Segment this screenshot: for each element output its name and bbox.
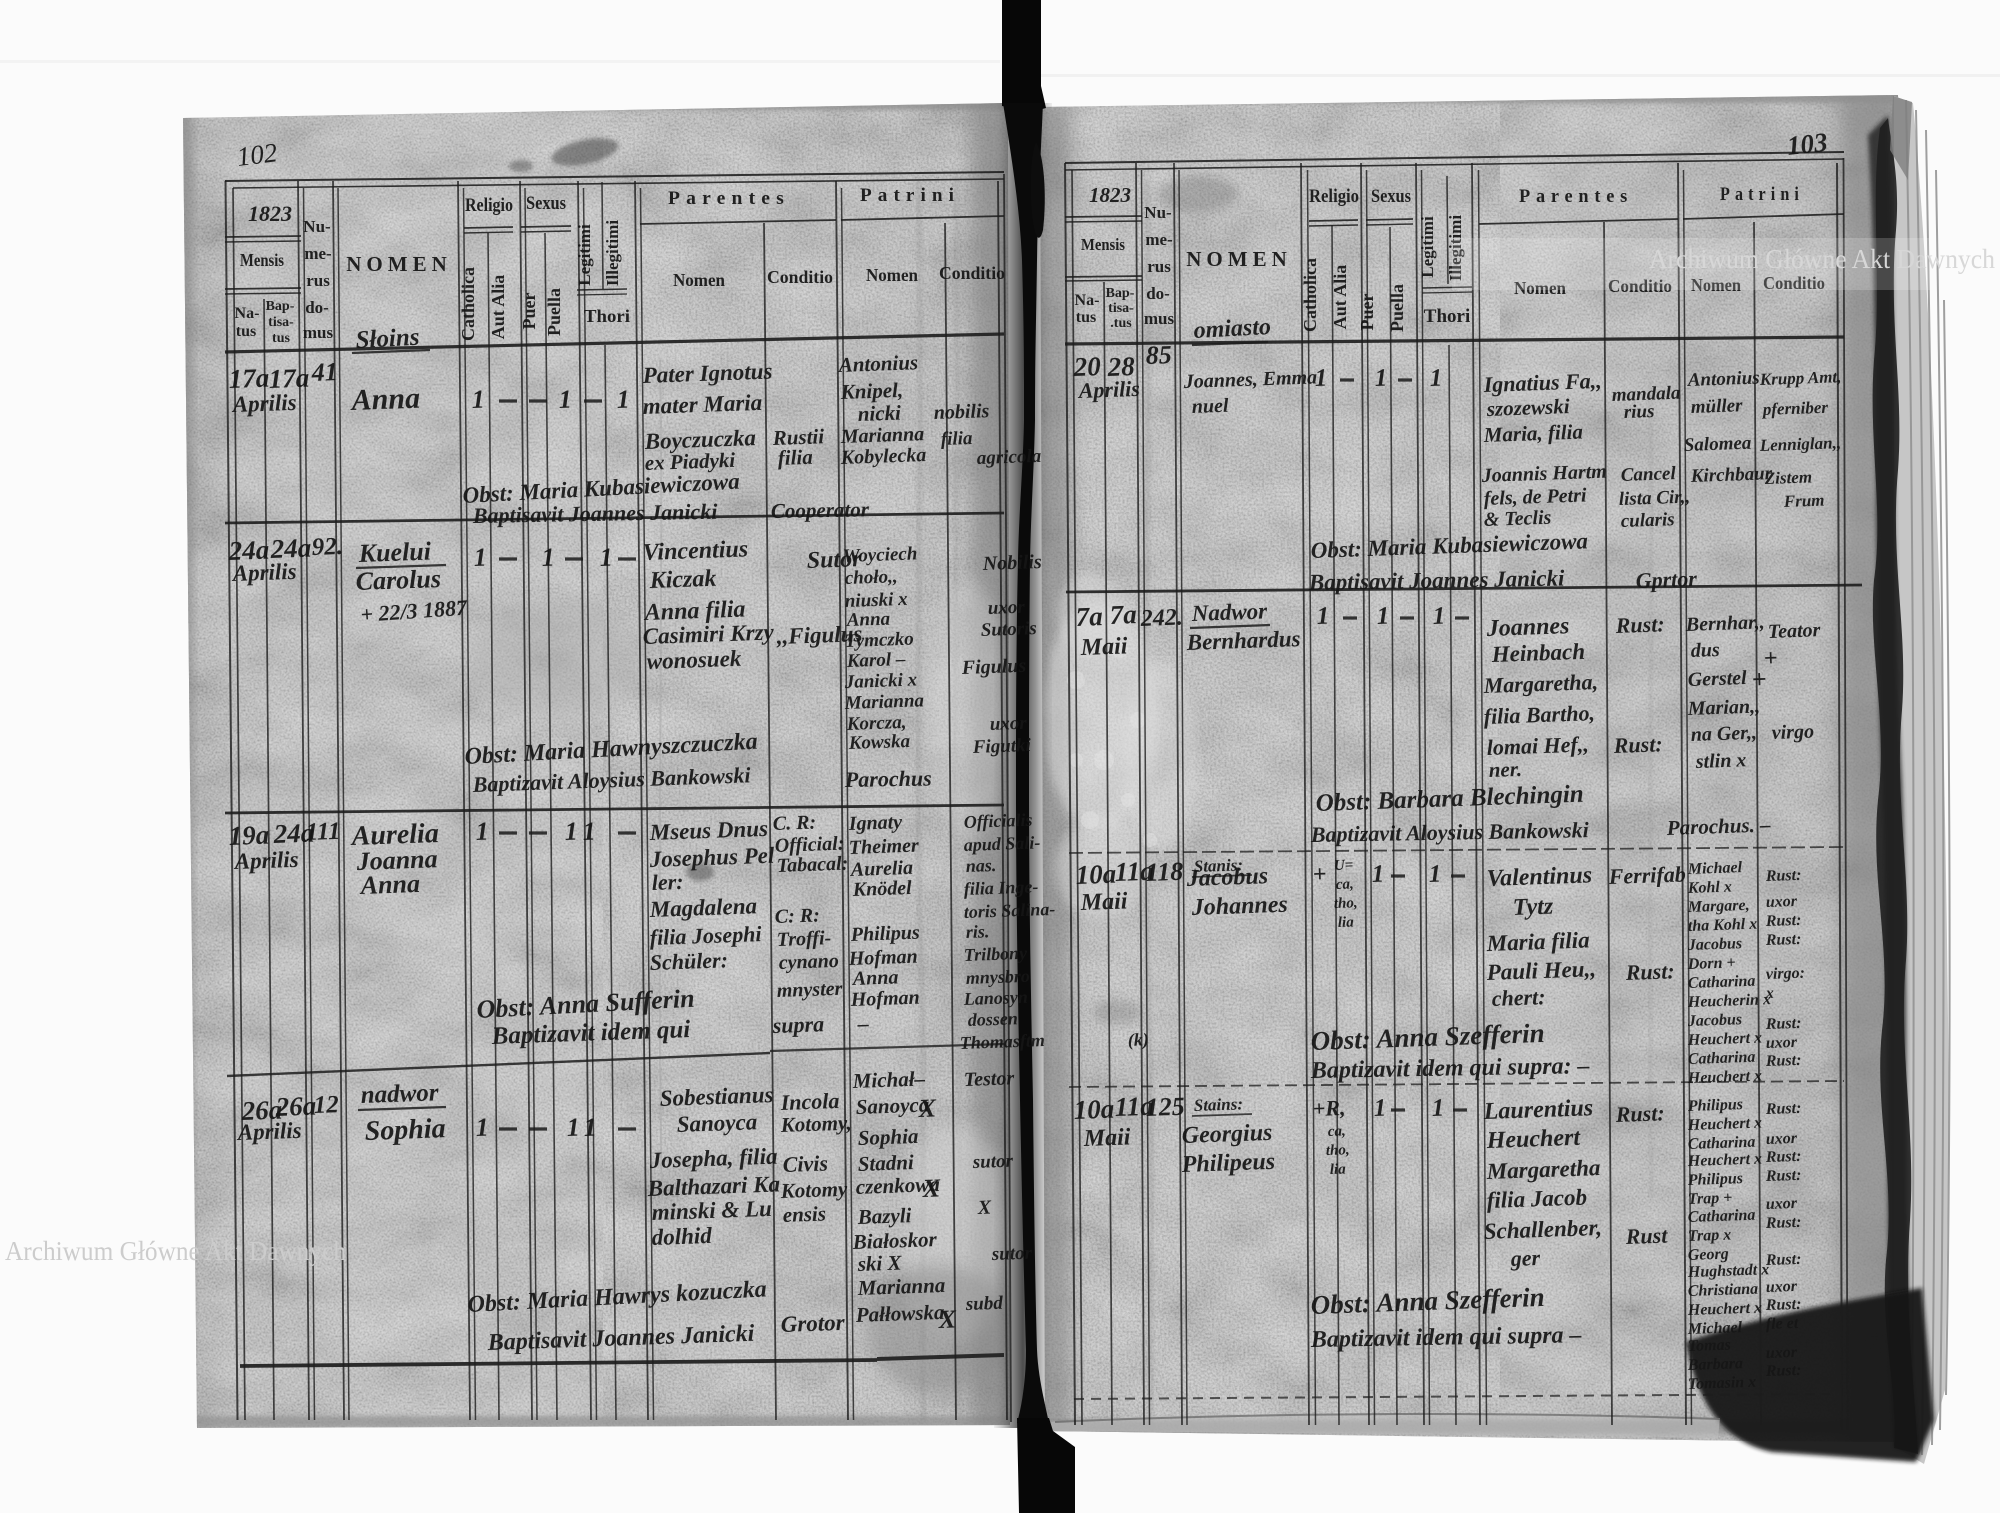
svg-text:Kotomy: Kotomy (779, 1177, 848, 1203)
svg-text:Bap-: Bap- (1106, 286, 1135, 301)
svg-text:Marianna: Marianna (843, 690, 924, 714)
svg-text:Heinbach: Heinbach (1490, 639, 1585, 667)
svg-text:Puer: Puer (1357, 293, 1377, 330)
svg-text:Schüler:: Schüler: (649, 947, 728, 975)
svg-text:Illegitimi: Illegitimi (603, 220, 622, 286)
svg-text:filia: filia (940, 428, 973, 450)
svg-text:Civis: Civis (782, 1150, 828, 1177)
svg-text:7a: 7a (1109, 599, 1137, 630)
svg-text:tho,: tho, (1334, 895, 1358, 912)
svg-text:Rust:: Rust: (1765, 931, 1802, 949)
svg-text:Salomea: Salomea (1683, 433, 1752, 456)
svg-text:Lanosyn: Lanosyn (962, 987, 1028, 1009)
svg-text:Philipeus: Philipeus (1180, 1149, 1275, 1178)
svg-text:1: 1 (558, 385, 572, 414)
svg-text:Nadwor: Nadwor (1190, 598, 1268, 626)
svg-text:omiasto: omiasto (1193, 314, 1272, 344)
svg-text:Margaretha: Margaretha (1485, 1155, 1601, 1184)
svg-text:Kuelui: Kuelui (357, 536, 432, 568)
svg-text:chert:: chert: (1491, 984, 1546, 1011)
svg-text:Puella: Puella (544, 288, 564, 336)
svg-text:Catholica: Catholica (1300, 258, 1320, 332)
svg-text:filia Bartho,: filia Bartho, (1483, 700, 1595, 729)
svg-text:Patrini: Patrini (1720, 184, 1804, 205)
svg-text:Heuchert x: Heuchert x (1687, 1029, 1763, 1049)
svg-text:Maria filia: Maria filia (1485, 927, 1590, 956)
svg-text:111: 111 (305, 818, 341, 846)
svg-text:Mensis: Mensis (240, 250, 284, 270)
svg-text:12: 12 (313, 1091, 339, 1119)
svg-text:1: 1 (475, 1113, 489, 1142)
svg-text:24a: 24a (269, 533, 312, 564)
svg-text:Rust:: Rust: (1765, 1052, 1802, 1070)
svg-text:X: X (937, 1304, 957, 1334)
svg-text:Georg: Georg (1688, 1246, 1729, 1264)
svg-text:1: 1 (1432, 603, 1445, 630)
svg-text:Jacobus: Jacobus (1687, 1011, 1743, 1030)
svg-text:Dorn +: Dorn + (1687, 954, 1736, 973)
svg-text:10a: 10a (1075, 859, 1117, 890)
svg-text:tho,: tho, (1326, 1142, 1350, 1159)
svg-text:na Ger,,: na Ger,, (1690, 722, 1757, 746)
svg-text:virgo:: virgo: (1766, 965, 1806, 983)
svg-text:Frum: Frum (1782, 491, 1824, 511)
svg-text:10a: 10a (1073, 1094, 1115, 1125)
svg-text:apud Sali-: apud Sali- (963, 832, 1040, 855)
svg-text:28: 28 (1106, 351, 1136, 382)
svg-text:Ignaty: Ignaty (847, 811, 902, 835)
svg-text:Thori: Thori (1424, 306, 1470, 327)
svg-text:Catharina: Catharina (1688, 973, 1756, 992)
svg-text:ris.: ris. (965, 921, 989, 942)
svg-text:mus: mus (1144, 309, 1175, 328)
svg-text:Catholica: Catholica (458, 267, 478, 341)
svg-text:me-: me- (304, 244, 332, 263)
svg-text:17a: 17a (268, 363, 310, 394)
svg-text:Heuchert x: Heuchert x (1687, 1067, 1763, 1087)
svg-text:Figutki: Figutki (971, 735, 1031, 758)
svg-text:tus: tus (236, 323, 256, 340)
svg-text:1: 1 (564, 817, 578, 846)
svg-text:dus: dus (1690, 639, 1720, 662)
svg-text:filia Josephi: filia Josephi (649, 921, 763, 950)
svg-text:242.: 242. (1139, 605, 1183, 632)
svg-text:Baptizavit Aloysius Bankowski: Baptizavit Aloysius Bankowski (1310, 817, 1590, 847)
svg-text:Carolus: Carolus (355, 564, 441, 596)
svg-text:X: X (976, 1197, 992, 1220)
svg-text:fels, de Petri: fels, de Petri (1483, 484, 1587, 510)
svg-text:1823: 1823 (1089, 183, 1131, 207)
svg-text:1: 1 (473, 543, 487, 572)
svg-text:Maii: Maii (1079, 633, 1128, 661)
svg-text:Figulus: Figulus (960, 655, 1026, 679)
svg-text:Barbara: Barbara (1687, 1355, 1744, 1374)
svg-text:choło,,: choło,, (844, 566, 897, 589)
svg-text:Ferrifab: Ferrifab (1607, 861, 1686, 889)
svg-text:minski & Lu: minski & Lu (651, 1196, 772, 1225)
svg-text:Josepha, filia: Josepha, filia (648, 1144, 778, 1173)
svg-text:Theimer: Theimer (848, 835, 919, 859)
svg-text:mater Maria: mater Maria (642, 390, 762, 419)
svg-text:1: 1 (1428, 861, 1441, 888)
svg-text:ensis: ensis (782, 1202, 826, 1227)
svg-text:Nobilis: Nobilis (981, 551, 1042, 575)
svg-text:Bazyli: Bazyli (856, 1203, 912, 1229)
svg-text:Kirchbaur: Kirchbaur (1689, 463, 1773, 487)
svg-text:1: 1 (1429, 365, 1442, 392)
svg-text:Sanoyca: Sanoyca (676, 1109, 757, 1137)
svg-text:Hughstadt x: Hughstadt x (1687, 1261, 1770, 1281)
svg-text:Patrini: Patrini (860, 185, 960, 206)
svg-text:Joannes: Joannes (1485, 613, 1570, 642)
svg-text:1: 1 (541, 543, 555, 572)
svg-text:Gerstel: Gerstel (1687, 667, 1747, 691)
svg-text:1: 1 (1314, 365, 1327, 392)
svg-text:Parentes: Parentes (1519, 186, 1633, 207)
svg-text:Aprilis: Aprilis (230, 390, 297, 417)
svg-text:Krupp Amt,: Krupp Amt, (1758, 367, 1841, 389)
svg-text:dolhid: dolhid (651, 1223, 712, 1250)
svg-text:17a: 17a (228, 363, 270, 394)
svg-text:Parochus. –: Parochus. – (1665, 812, 1771, 840)
svg-text:.tus: .tus (1110, 316, 1132, 331)
svg-text:Conditio: Conditio (939, 263, 1005, 283)
svg-text:26a: 26a (274, 1091, 317, 1122)
svg-text:U=: U= (1334, 857, 1354, 874)
svg-text:Rust:: Rust: (1765, 1362, 1802, 1380)
svg-text:mnyster: mnyster (776, 978, 843, 1002)
svg-text:Antonius: Antonius (1686, 368, 1760, 392)
svg-text:Officialis: Officialis (963, 810, 1032, 832)
svg-text:1: 1 (616, 385, 630, 414)
svg-text:Woyciech: Woyciech (842, 543, 917, 567)
svg-text:Georgius: Georgius (1181, 1120, 1273, 1149)
svg-text:& Teclis: & Teclis (1483, 507, 1552, 531)
svg-text:1: 1 (582, 817, 596, 846)
svg-text:Aut Alia: Aut Alia (488, 275, 508, 340)
svg-text:Rust:: Rust: (1765, 1148, 1802, 1166)
svg-text:Stadni: Stadni (857, 1150, 914, 1176)
svg-text:Joannis Hartm: Joannis Hartm (1480, 461, 1607, 487)
svg-text:Bap-: Bap- (266, 299, 295, 314)
svg-text:uxor: uxor (987, 597, 1025, 619)
svg-text:Nomen: Nomen (866, 265, 918, 285)
svg-text:Rust:: Rust: (1765, 1214, 1802, 1232)
svg-text:uxor: uxor (1766, 1278, 1798, 1296)
svg-text:1: 1 (1316, 603, 1329, 630)
svg-text:müller: müller (1690, 395, 1743, 418)
svg-text:1: 1 (1371, 861, 1384, 888)
svg-text:Jacobus: Jacobus (1185, 863, 1268, 892)
svg-text:X: X (921, 1173, 941, 1203)
svg-text:Archiwum Główne Akt Dawnych: Archiwum Główne Akt Dawnych (1649, 244, 1995, 274)
svg-text:Trilbony: Trilbony (963, 943, 1028, 965)
svg-text:uxor: uxor (1766, 893, 1798, 911)
svg-text:92.: 92. (311, 533, 343, 561)
svg-text:Nomen: Nomen (673, 270, 725, 290)
svg-text:Magdalena: Magdalena (648, 893, 757, 922)
svg-text:subd: subd (964, 1293, 1003, 1315)
svg-text:Ignatius Fa,,: Ignatius Fa,, (1482, 368, 1602, 397)
svg-text:Antonius: Antonius (836, 350, 918, 377)
svg-text:ner.: ner. (1488, 757, 1522, 782)
svg-text:Rust:: Rust: (1765, 1251, 1802, 1269)
svg-text:Thori: Thori (584, 306, 630, 326)
svg-text:filia: filia (777, 445, 813, 470)
svg-text:Aut Alia: Aut Alia (1330, 265, 1350, 330)
svg-text:x: x (1765, 985, 1775, 1002)
svg-text:uxor: uxor (1766, 1344, 1798, 1362)
svg-text:Philipus: Philipus (1687, 1096, 1744, 1115)
svg-text:+: + (1763, 646, 1778, 672)
svg-text:Schallenber,: Schallenber, (1483, 1215, 1602, 1244)
svg-text:Margare,: Margare, (1687, 897, 1750, 916)
svg-text:Philipus: Philipus (849, 922, 920, 946)
svg-text:mus: mus (303, 323, 334, 342)
svg-text:Kohl x: Kohl x (1687, 878, 1733, 897)
svg-text:Michael: Michael (1687, 859, 1743, 878)
svg-text:Zistem: Zistem (1763, 467, 1812, 488)
svg-text:19a: 19a (228, 820, 270, 851)
svg-text:7a: 7a (1075, 601, 1103, 632)
svg-text:Margaretha,: Margaretha, (1482, 669, 1598, 698)
svg-text:Marian,,: Marian,, (1686, 695, 1760, 720)
svg-text:Rust:: Rust: (1614, 1100, 1665, 1127)
svg-text:102: 102 (235, 137, 279, 172)
svg-text:ca,: ca, (1328, 1123, 1346, 1140)
svg-text:Puella: Puella (1387, 284, 1407, 332)
svg-text:Anna: Anna (349, 382, 420, 417)
svg-text:me-: me- (1145, 230, 1173, 249)
svg-text:Grotor: Grotor (780, 1310, 846, 1337)
svg-text:nadwor: nadwor (360, 1079, 439, 1109)
svg-text:1: 1 (1374, 365, 1387, 392)
svg-text:Anna: Anna (358, 869, 420, 900)
svg-text:Heuchert x: Heuchert x (1687, 1299, 1763, 1319)
svg-text:Trap x: Trap x (1688, 1226, 1732, 1245)
svg-text:Gprtor: Gprtor (1635, 566, 1697, 593)
svg-text:85: 85 (1145, 340, 1172, 370)
svg-text:1: 1 (599, 543, 613, 572)
svg-text:1: 1 (583, 1113, 597, 1142)
svg-text:mnysbro: mnysbro (965, 966, 1030, 988)
svg-text:1: 1 (566, 1113, 580, 1142)
svg-text:rius: rius (1623, 401, 1654, 423)
svg-text:C: R:: C: R: (774, 904, 820, 928)
svg-text:Rust: Rust (1624, 1223, 1668, 1250)
svg-text:Religio: Religio (465, 195, 513, 216)
svg-text:Anna: Anna (850, 966, 898, 990)
svg-text:Kobylecka: Kobylecka (839, 444, 926, 469)
svg-text:Valentinus: Valentinus (1486, 862, 1592, 892)
svg-text:1: 1 (1431, 1095, 1444, 1122)
svg-text:Rust:: Rust: (1765, 912, 1802, 930)
svg-text:Legitimi: Legitimi (1418, 216, 1437, 278)
svg-text:uxor: uxor (1766, 1034, 1798, 1052)
svg-text:Archiwum Główne Akt Dawnych: Archiwum Główne Akt Dawnych (5, 1236, 346, 1266)
svg-text:Sophia: Sophia (857, 1124, 919, 1150)
svg-text:Philipus: Philipus (1687, 1170, 1744, 1189)
svg-text:Na-: Na- (235, 305, 260, 322)
svg-text:uxor: uxor (1766, 1195, 1798, 1213)
svg-text:Rust:: Rust: (1612, 731, 1663, 758)
svg-text:ler:: ler: (651, 869, 684, 895)
svg-text:szozewski: szozewski (1485, 394, 1570, 421)
svg-text:lomai Hef,,: lomai Hef,, (1486, 731, 1589, 760)
svg-text:Stains:: Stains: (1193, 1094, 1243, 1115)
svg-text:Trap +: Trap + (1688, 1189, 1733, 1208)
svg-text:sutor: sutor (971, 1151, 1013, 1173)
svg-text:rus: rus (306, 271, 330, 290)
svg-text:1823: 1823 (248, 201, 292, 226)
svg-text:ski X: ski X (856, 1250, 903, 1276)
svg-text:virgo: virgo (1771, 721, 1814, 744)
svg-text:Tomas: Tomas (1688, 1337, 1732, 1355)
svg-text:Cooperator: Cooperator (771, 497, 870, 523)
svg-text:Baptizavit idem qui supra: –: Baptizavit idem qui supra: – (1310, 1053, 1590, 1084)
svg-text:Baptisavit Joannes Janicki: Baptisavit Joannes Janicki (472, 499, 719, 528)
svg-text:Legitimi: Legitimi (575, 224, 594, 286)
svg-text:toris Salina-: toris Salina- (963, 899, 1055, 922)
svg-text:Rust:: Rust: (1765, 1015, 1802, 1033)
svg-text:Rust:: Rust: (1614, 611, 1665, 638)
svg-text:Testor: Testor (963, 1067, 1014, 1091)
svg-text:–: – (856, 1011, 869, 1036)
svg-text:Maii: Maii (1079, 888, 1128, 916)
svg-text:Pałłowska: Pałłowska (854, 1300, 944, 1327)
svg-text:Rust:: Rust: (1765, 1296, 1802, 1314)
svg-text:C. R:: C. R: (772, 811, 816, 834)
svg-text:lia: lia (1330, 1161, 1347, 1178)
svg-text:NOMEN: NOMEN (1186, 247, 1292, 271)
svg-text:Sexus: Sexus (526, 193, 566, 214)
svg-text:Sobestianus: Sobestianus (659, 1082, 774, 1111)
svg-text:nobilis: nobilis (933, 400, 990, 424)
svg-text:Heuchert x: Heuchert x (1687, 1114, 1763, 1134)
svg-text:Heuchert: Heuchert (1485, 1125, 1582, 1154)
svg-text:Nu-: Nu- (303, 217, 331, 236)
svg-text:dossen: dossen (967, 1008, 1018, 1030)
svg-text:Maii: Maii (1082, 1124, 1131, 1152)
svg-text:Baptizavit idem qui supra –: Baptizavit idem qui supra – (1310, 1322, 1582, 1353)
svg-text:NOMEN: NOMEN (346, 252, 452, 276)
svg-text:Kowska: Kowska (847, 731, 910, 754)
svg-text:Christiana: Christiana (1688, 1281, 1759, 1300)
svg-text:cularis: cularis (1620, 509, 1675, 532)
svg-text:Kiczak: Kiczak (648, 566, 717, 594)
svg-text:Cancel: Cancel (1620, 463, 1676, 486)
svg-text:Aprilis: Aprilis (235, 1118, 302, 1145)
svg-text:Kotomy,: Kotomy, (779, 1111, 852, 1137)
svg-text:stlin x: stlin x (1694, 749, 1746, 773)
svg-text:Rust:: Rust: (1624, 958, 1675, 985)
svg-text:X: X (917, 1093, 937, 1123)
svg-text:Bernhardus: Bernhardus (1185, 626, 1301, 655)
svg-text:Parochus: Parochus (844, 765, 932, 792)
svg-text:Karol –: Karol – (845, 649, 906, 672)
svg-text:41: 41 (310, 357, 338, 387)
svg-text:Knödel: Knödel (851, 877, 912, 901)
svg-text:Sutoris: Sutoris (980, 618, 1037, 641)
svg-text:Hofman: Hofman (849, 987, 920, 1011)
svg-text:Conditio: Conditio (767, 267, 833, 287)
svg-text:1: 1 (1376, 603, 1389, 630)
svg-text:Puer: Puer (519, 292, 539, 329)
svg-text:Johannes: Johannes (1190, 892, 1288, 921)
svg-text:sutor: sutor (990, 1243, 1032, 1265)
svg-text:rus: rus (1147, 257, 1171, 276)
svg-text:uxor: uxor (1766, 1130, 1798, 1148)
svg-text:1: 1 (475, 817, 489, 846)
svg-text:Vincentius: Vincentius (642, 536, 748, 566)
svg-text:Mensis: Mensis (1081, 235, 1125, 254)
svg-text:Religio: Religio (1309, 186, 1359, 207)
svg-text:tus: tus (272, 331, 290, 346)
svg-text:do-: do- (1146, 284, 1170, 303)
svg-text:agricola: agricola (976, 446, 1042, 469)
svg-text:Maria, filia: Maria, filia (1482, 420, 1583, 447)
svg-text:nicki: nicki (857, 400, 901, 425)
svg-text:wonosuek: wonosuek (646, 646, 742, 674)
svg-text:lia: lia (1338, 914, 1355, 931)
svg-text:103: 103 (1785, 127, 1828, 161)
svg-text:(k): (k) (1127, 1029, 1149, 1051)
svg-text:118: 118 (1145, 857, 1184, 887)
svg-text:Nu-: Nu- (1144, 203, 1172, 222)
svg-text:Thomasftm: Thomasftm (959, 1030, 1045, 1053)
svg-text:Pauli Heu,,: Pauli Heu,, (1485, 956, 1596, 985)
svg-text:1: 1 (471, 385, 485, 414)
svg-text:Catharina: Catharina (1688, 1207, 1756, 1226)
svg-text:Tytz: Tytz (1512, 894, 1554, 921)
svg-text:fle et: fle et (1766, 1315, 1800, 1333)
svg-text:tisa-: tisa- (1108, 301, 1134, 316)
svg-text:1: 1 (1373, 1095, 1386, 1122)
svg-text:Josephus Pel: Josephus Pel (648, 843, 775, 872)
svg-text:Sexus: Sexus (1371, 186, 1411, 207)
svg-text:Catharina: Catharina (1688, 1049, 1756, 1068)
svg-text:Mseus Dnus: Mseus Dnus (648, 816, 768, 845)
svg-text:Bernhar,,: Bernhar,, (1684, 611, 1765, 636)
svg-text:Rust:: Rust: (1765, 1167, 1802, 1185)
svg-text:Casimiri Krzy: Casimiri Krzy (642, 619, 775, 649)
svg-text:uxor: uxor (989, 713, 1027, 735)
svg-text:+: + (1312, 862, 1327, 888)
svg-text:Troffi-: Troffi- (776, 927, 831, 951)
svg-text:tha Kohl x: tha Kohl x (1688, 916, 1758, 935)
svg-text:Heuchert x: Heuchert x (1687, 1150, 1763, 1170)
svg-text:ger: ger (1509, 1245, 1541, 1271)
svg-text:tisa-: tisa- (268, 315, 294, 330)
svg-text:cynano: cynano (778, 950, 839, 974)
svg-text:Baptisavit Joannes Janicki: Baptisavit Joannes Janicki (1308, 566, 1566, 595)
svg-text:Aprilis: Aprilis (232, 847, 299, 874)
svg-text:Parentes: Parentes (668, 188, 790, 209)
svg-text:Teator: Teator (1767, 619, 1821, 643)
svg-text:Anna: Anna (845, 608, 891, 631)
svg-text:filia Inge-: filia Inge- (963, 876, 1038, 899)
svg-text:Tomasin x: Tomasin x (1688, 1374, 1757, 1393)
svg-text:Sophia: Sophia (364, 1113, 446, 1147)
svg-text:Michał–: Michał– (851, 1066, 926, 1093)
svg-text:nas.: nas. (965, 855, 996, 876)
svg-text:Heucherin x: Heucherin x (1687, 991, 1772, 1011)
svg-text:Rust:: Rust: (1765, 867, 1802, 885)
svg-text:pferniber: pferniber (1760, 398, 1828, 419)
svg-text:nuel: nuel (1191, 395, 1229, 418)
svg-text:tus: tus (1076, 309, 1096, 326)
svg-text:Laurentius: Laurentius (1482, 1095, 1593, 1125)
